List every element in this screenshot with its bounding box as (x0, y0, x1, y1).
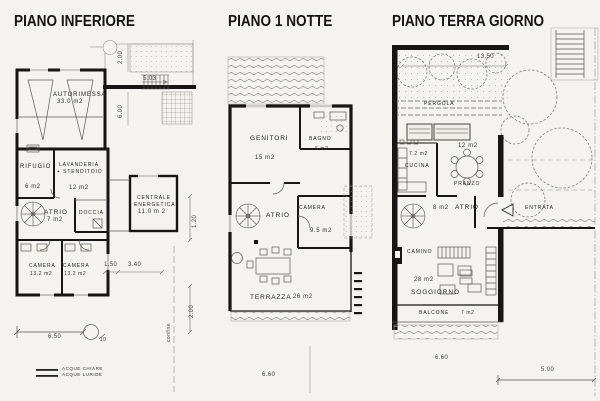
dim-200-top: 2.00 (118, 51, 124, 64)
room-label-autorimessa: AUTORIMESSA (53, 92, 106, 98)
room-label-lavanderia: LAVANDERIA (59, 162, 99, 168)
room-area-genitori: 15 m2 (255, 155, 275, 161)
roof-garden (228, 57, 324, 104)
fireplace (393, 247, 402, 264)
building-walls (17, 70, 177, 295)
room-area-camera-3: 9.5 m2 (310, 228, 332, 234)
legend-acque-chiare: ACQUE CHIARE (62, 366, 103, 371)
plan-giorno-title: PIANO TERRA GIORNO (392, 13, 544, 31)
room-label-atrio-3: ATRIO (455, 204, 479, 211)
room-label-atrio-1: ATRIO (44, 209, 68, 216)
room-label-rifugio: RIFUGIO (20, 164, 51, 170)
room-area-balcone: 7 m2 (461, 310, 475, 316)
balcony-rail-marks (354, 272, 362, 314)
room-area-pranzo: 12 m2 (458, 143, 478, 149)
dim-660-notte: 6.60 (262, 372, 275, 378)
room-label-entrata: ENTRATA (525, 205, 554, 211)
confine-label: confine (166, 323, 172, 342)
spiral-stair (21, 202, 45, 226)
room-label-camino: CAMINO (407, 249, 432, 255)
room-area-cucina: 7.2 m2 (409, 151, 428, 157)
entry-path (508, 160, 592, 190)
room-area-soggiorno: 28 m2 (414, 277, 434, 283)
room-label-balcone: BALCONE (419, 310, 449, 316)
room-label-atrio-2: ATRIO (266, 212, 290, 219)
entrata-arrow-icon (502, 204, 513, 216)
dim-503: 5.03 (143, 76, 156, 82)
room-label-bagno: BAGNO (309, 136, 332, 142)
entry-door-arc (484, 203, 498, 217)
spiral-stair (236, 204, 260, 228)
dim-500-line (496, 375, 596, 385)
dim-660-giorno: 6.60 (435, 355, 448, 361)
dim-1350: 13.50 (477, 54, 494, 60)
plan-giorno-drawing (380, 0, 600, 401)
legend-acque-luride: ACQUE LURIDE (62, 372, 102, 377)
column-dot (254, 240, 258, 244)
plan-inferiore-title: PIANO INFERIORE (14, 13, 135, 31)
garden-edge-hatch (394, 325, 498, 339)
room-label-camera-1: CAMERA (29, 263, 56, 269)
retaining-wall (103, 85, 196, 89)
room-label-stenditoio: + STENDITOIO (57, 169, 103, 175)
legend-swatches (36, 369, 58, 377)
dining-table (451, 149, 483, 185)
room-area-bagno: 6 m2 (315, 146, 329, 152)
room-label-cucina: CUCINA (405, 163, 430, 169)
dim-650: 6.50 (48, 334, 61, 340)
terrace-edge-hatch (231, 312, 350, 321)
room-label-camera-2: CAMERA (63, 263, 90, 269)
dim-120: 1.20 (192, 215, 198, 228)
plan-notte-title: PIANO 1 NOTTE (228, 13, 332, 31)
dim-10: 10 (100, 337, 106, 343)
room-area-lavanderia: 12 m2 (69, 185, 89, 191)
exterior-stair (551, 28, 598, 80)
room-label-camera-3: CAMERA (299, 205, 326, 211)
dim-150: 1.50 (104, 262, 117, 268)
room-area-atrio-3: 8 m2 (433, 205, 449, 211)
dim-600: 6.00 (118, 105, 124, 118)
room-label-doccia: DOCCIA (79, 210, 104, 216)
room-area-atrio-1: 7 m2 (47, 217, 63, 223)
living-furniture (438, 247, 496, 295)
entry-steps-hatch (344, 186, 372, 238)
room-area-autorimessa: 33.0 m2 (57, 99, 83, 105)
room-area-camera-1: 13.2 m2 (30, 271, 52, 277)
room-label-pranzo: PRANZO (454, 181, 480, 187)
room-label-pergola: PERGOLA (424, 101, 454, 107)
pergola-grid (162, 92, 192, 124)
room-area-centrale: 11.0 m 2 (138, 209, 166, 215)
room-label-genitori: GENITORI (250, 135, 289, 142)
plan-inferiore-drawing (0, 0, 220, 401)
room-label-terrazza: TERRAZZA (250, 294, 292, 301)
dim-340: 3.40 (128, 262, 141, 268)
room-area-camera-2: 13.2 m2 (64, 271, 86, 277)
floorplan-sheet: PIANO INFERIORE PIANO 1 NOTTE PIANO TERR… (0, 0, 600, 401)
dim-500: 5.00 (541, 367, 554, 373)
room-label-centrale: CENTRALE (137, 195, 171, 201)
room-area-terrazza: 26 m2 (293, 294, 313, 300)
room-label-energetica: ENERGETICA (134, 202, 176, 208)
room-area-rifugio: 6 m2 (25, 184, 41, 190)
plan-notte-drawing (220, 0, 380, 401)
planters (407, 124, 470, 140)
room-label-soggiorno: SOGGIORNO (411, 289, 460, 296)
dim-200-right: 2.00 (189, 305, 195, 318)
spiral-stair (401, 204, 425, 228)
entry-garden-hatch (503, 219, 595, 227)
